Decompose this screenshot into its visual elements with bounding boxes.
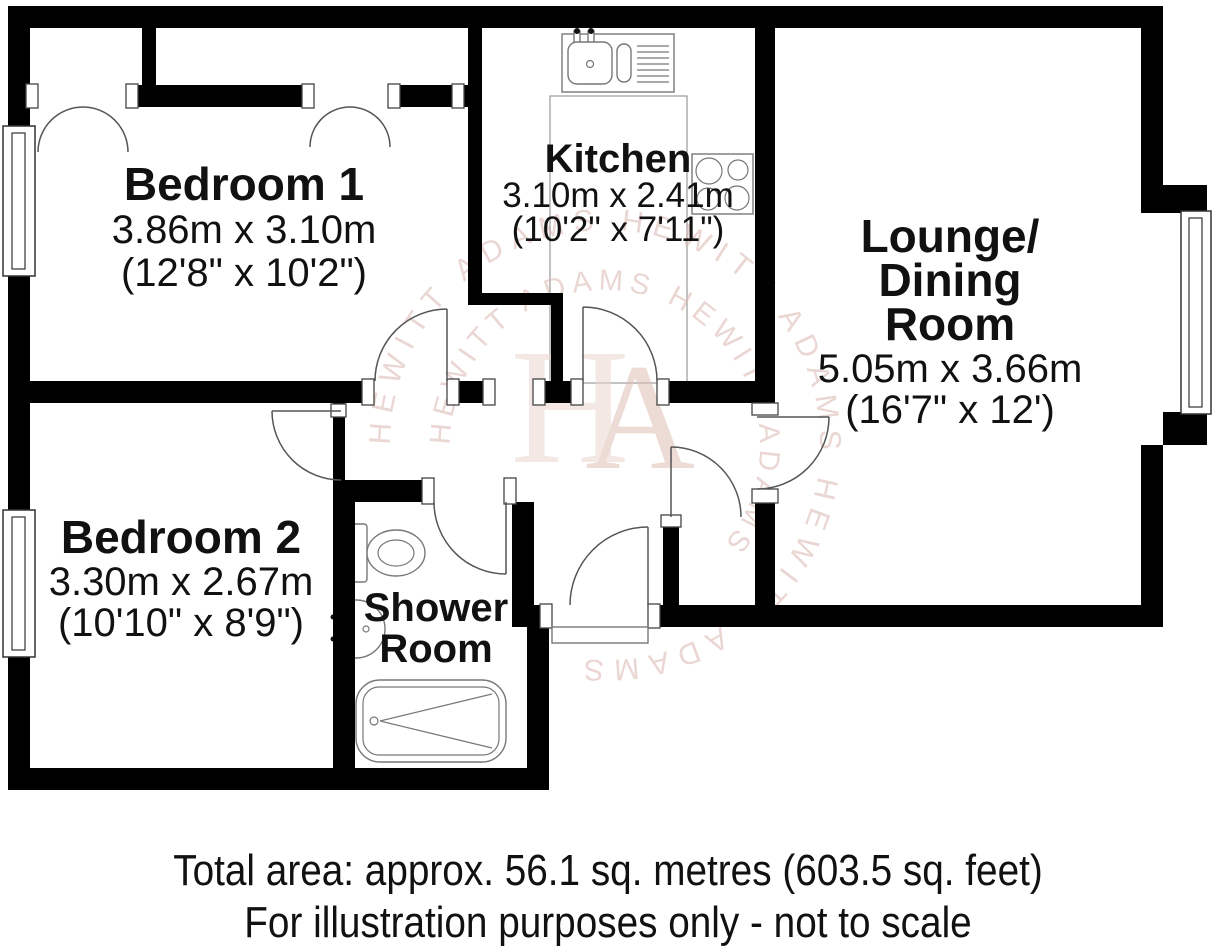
bathtub-icon (356, 680, 506, 762)
total-area-text: Total area: approx. 56.1 sq. metres (603… (73, 846, 1143, 896)
label-bedroom2: Bedroom 2 3.30m x 2.67m (10'10" x 8'9") (49, 511, 314, 645)
lounge-metric: 5.05m x 3.66m (818, 347, 1083, 391)
kitchen-imperial: (10'2" x 7'11") (512, 210, 725, 249)
label-lounge: Lounge/ Dining Room 5.05m x 3.66m (16'7"… (818, 210, 1083, 432)
toilet-icon (347, 524, 425, 582)
watermark-initial-a: A (585, 333, 695, 501)
bedroom2-name: Bedroom 2 (61, 511, 301, 563)
wardrobe-doors-bedroom1 (38, 107, 390, 152)
door-bedroom2 (272, 411, 341, 480)
entrance-step (552, 627, 648, 643)
disclaimer-text: For illustration purposes only - not to … (73, 898, 1143, 948)
entrance-door (552, 527, 648, 643)
kitchen-sink-icon (562, 28, 674, 92)
bedroom1-imperial: (12'8" x 10'2") (121, 251, 367, 295)
floor-plan: HEWITT ADAMS HEWITT ADAMS HEWITT ADAMS H… (0, 0, 1216, 820)
shower-name-line2: Room (379, 627, 492, 671)
window-bedroom2 (3, 510, 35, 657)
label-shower-room: Shower Room (364, 586, 508, 671)
bedroom2-imperial: (10'10" x 8'9") (58, 601, 304, 645)
label-bedroom1: Bedroom 1 3.86m x 3.10m (12'8" x 10'2") (112, 158, 377, 295)
lounge-imperial: (16'7" x 12') (845, 388, 1055, 432)
bedroom1-name: Bedroom 1 (124, 158, 364, 210)
bedroom2-metric: 3.30m x 2.67m (49, 560, 314, 604)
kitchen-name: Kitchen (545, 137, 692, 181)
lounge-name-line3: Room (885, 298, 1015, 350)
door-shower-room (434, 502, 506, 574)
bedroom1-metric: 3.86m x 3.10m (112, 208, 377, 252)
window-lounge-bay (1181, 211, 1211, 414)
shower-name-line1: Shower (364, 586, 508, 630)
window-bedroom1 (3, 126, 35, 276)
